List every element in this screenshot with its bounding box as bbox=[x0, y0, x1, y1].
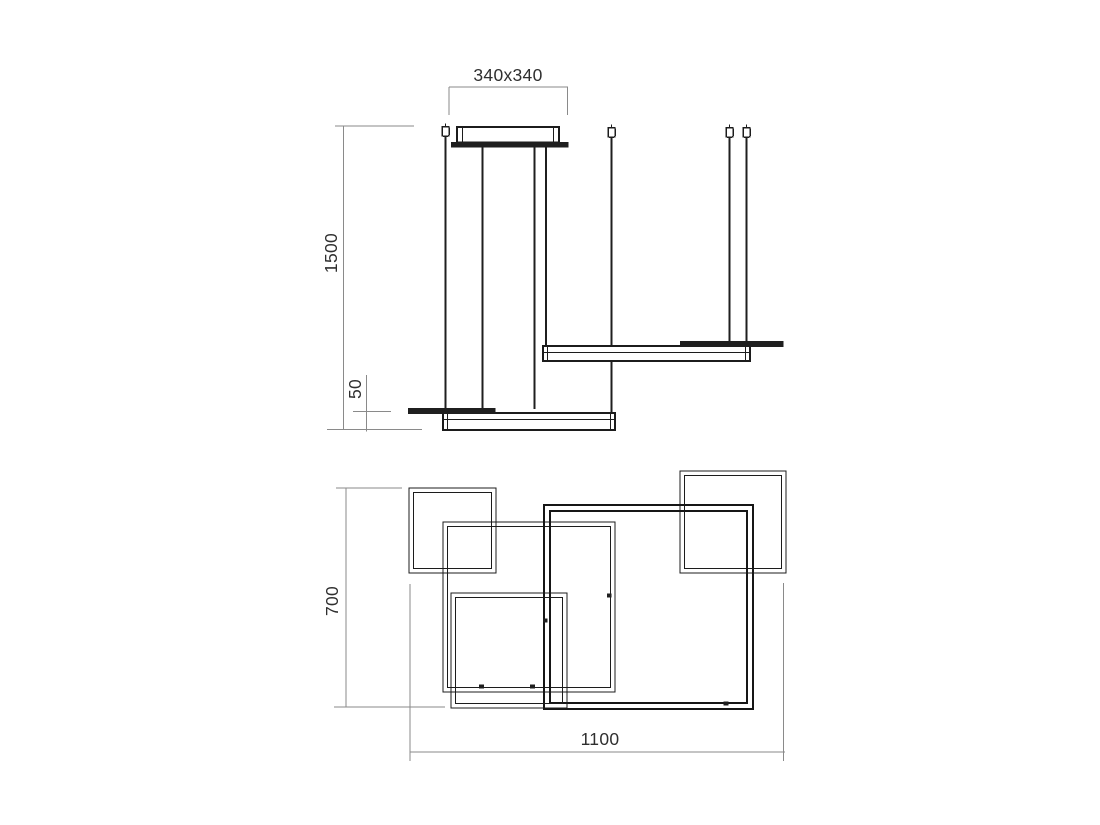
canopy bbox=[451, 127, 568, 147]
dim-depth-label: 700 bbox=[322, 586, 342, 616]
dim-profile-label: 50 bbox=[345, 379, 365, 399]
elevation-view bbox=[327, 87, 783, 432]
technical-drawing: 340x340 1500 50 bbox=[0, 0, 1100, 825]
frame-inner bbox=[685, 476, 782, 569]
plan-view bbox=[334, 471, 786, 761]
attachment-dot bbox=[724, 702, 729, 706]
frame-outer bbox=[680, 471, 786, 573]
upper-light-bar bbox=[543, 341, 783, 361]
dim-canopy-label: 340x340 bbox=[473, 65, 542, 85]
dim-suspension-label: 1500 bbox=[321, 233, 341, 273]
plan-frame-top-left bbox=[409, 488, 496, 573]
upper-bar-top-frame-edge bbox=[680, 341, 783, 347]
cable-gripper-icon bbox=[743, 125, 750, 138]
lower-bar-top-frame-edge bbox=[408, 408, 495, 414]
upper-bar-profile bbox=[543, 346, 750, 361]
attachment-dot bbox=[530, 685, 535, 689]
frame-outer bbox=[544, 505, 753, 709]
lower-bar-profile bbox=[443, 413, 615, 430]
canopy-base-plate bbox=[451, 142, 568, 147]
dim-canopy-340x340 bbox=[449, 87, 568, 115]
lower-light-bar bbox=[408, 408, 615, 430]
frame-outer bbox=[409, 488, 496, 573]
cable-gripper-icon bbox=[608, 125, 615, 138]
suspension-wires bbox=[446, 135, 747, 414]
cable-gripper-icon bbox=[726, 125, 733, 138]
elevation-dim-labels: 340x340 1500 50 bbox=[321, 65, 543, 399]
attachment-dot bbox=[607, 594, 612, 598]
plan-frame-large-right bbox=[544, 505, 753, 709]
cable-gripper-icon bbox=[442, 124, 449, 137]
plan-dim-labels: 700 1100 bbox=[322, 586, 619, 749]
canopy-box bbox=[457, 127, 559, 143]
frame-outer bbox=[443, 522, 615, 692]
dim-depth-700 bbox=[334, 488, 445, 707]
plan-frame-top-right bbox=[680, 471, 786, 573]
plan-frame-middle bbox=[443, 522, 615, 692]
frame-inner bbox=[550, 511, 747, 703]
wire-attachment-points bbox=[479, 594, 729, 706]
dim-suspension-1500 bbox=[327, 126, 422, 430]
attachment-dot bbox=[479, 685, 484, 689]
attachment-dot bbox=[543, 619, 548, 623]
dim-width-label: 1100 bbox=[581, 729, 620, 749]
frame-inner bbox=[448, 527, 611, 688]
frame-inner bbox=[414, 493, 492, 569]
